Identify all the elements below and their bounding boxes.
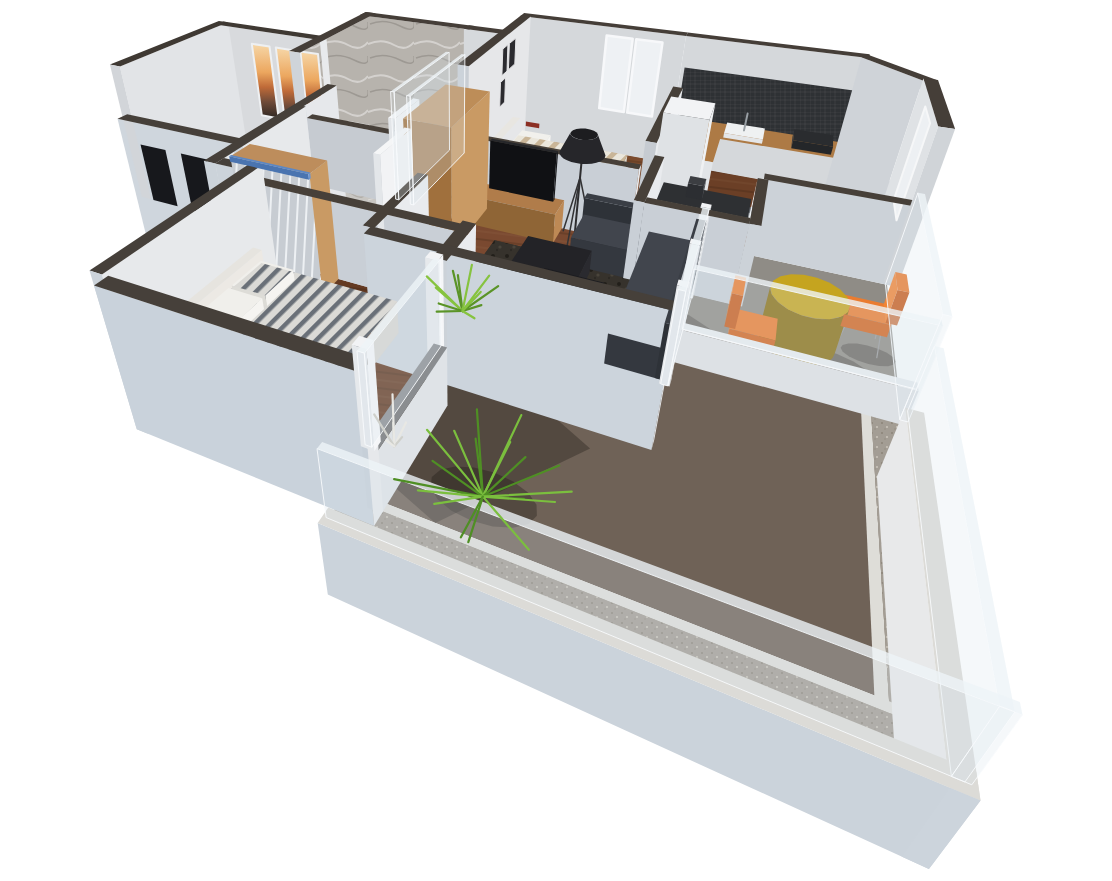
floorplan-3d-render: [0, 0, 1112, 881]
floorplan-page: [0, 0, 1112, 881]
render-canvas: [0, 0, 1112, 881]
gallery-frames-row-2: [500, 78, 506, 107]
plant-living: [437, 311, 463, 312]
gallery-frames-row-1: [502, 45, 508, 76]
